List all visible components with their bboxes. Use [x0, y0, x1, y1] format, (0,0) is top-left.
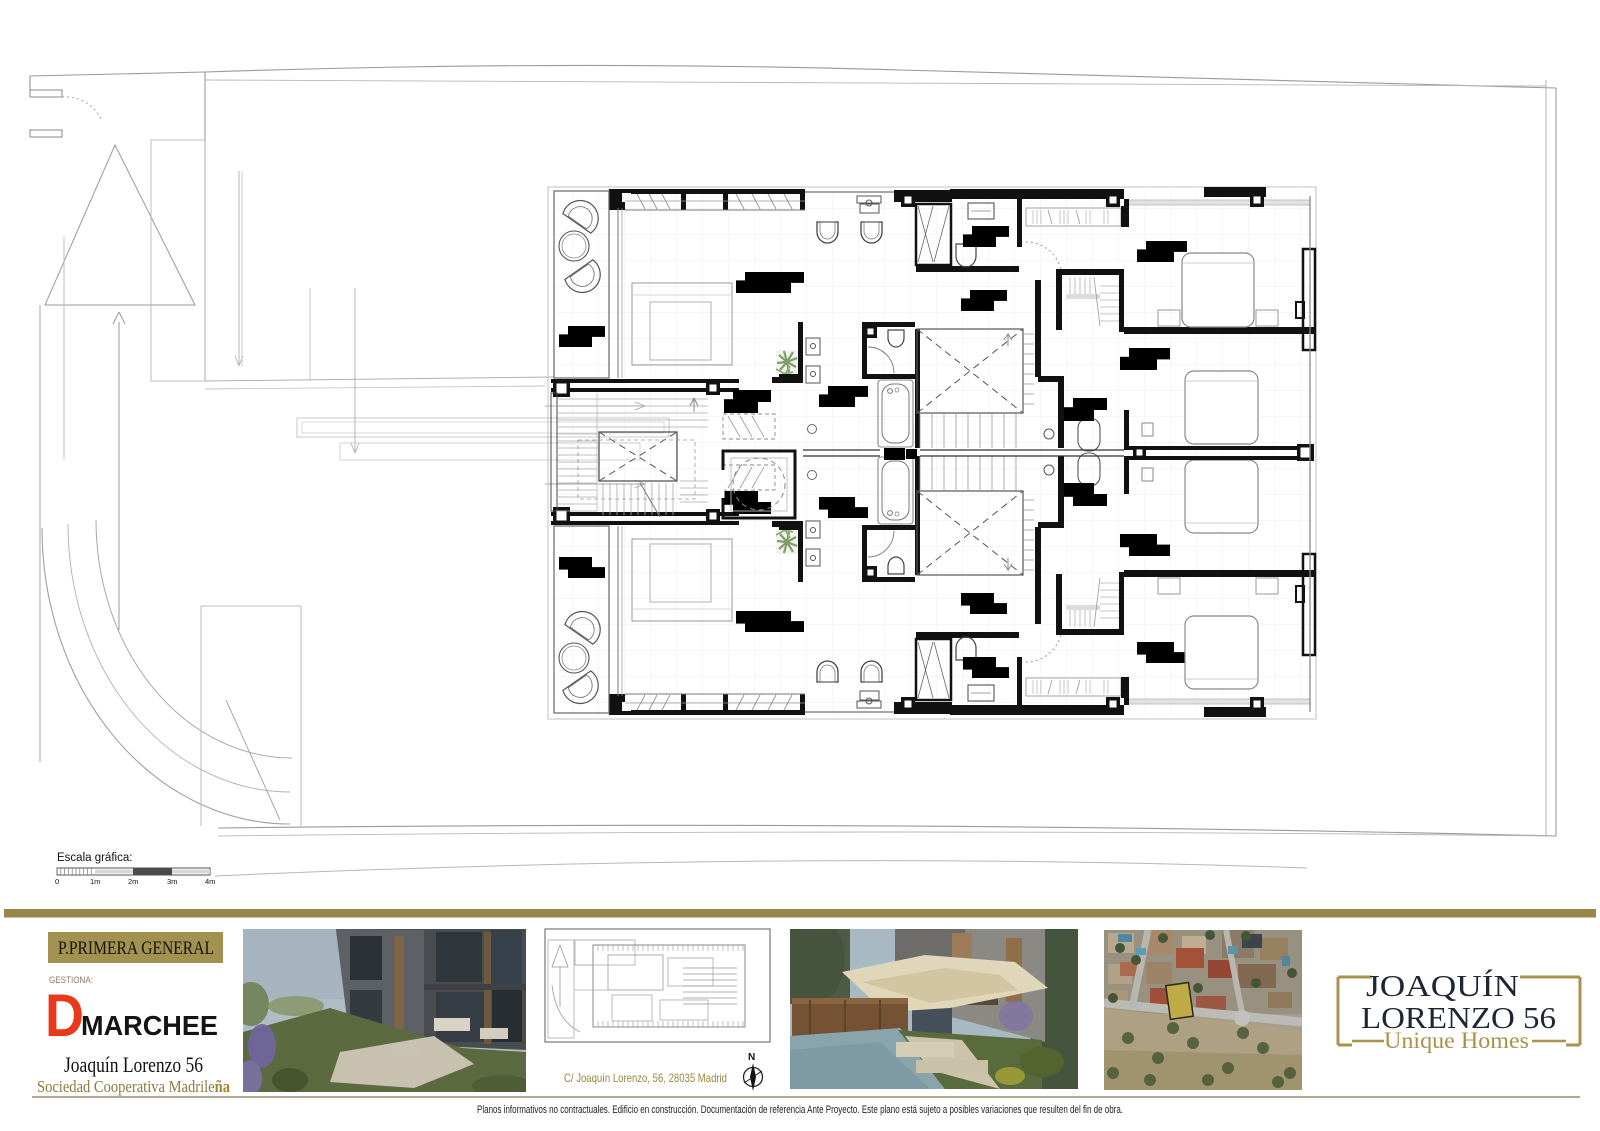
svg-text:1m: 1m [90, 877, 100, 886]
svg-text:Joaquín Lorenzo 56: Joaquín Lorenzo 56 [64, 1052, 203, 1077]
svg-text:0: 0 [55, 877, 59, 886]
svg-text:Escala gráfica:: Escala gráfica: [57, 852, 132, 864]
svg-text:2m: 2m [128, 877, 138, 886]
svg-text:JOAQUÍN: JOAQUÍN [1366, 968, 1519, 1003]
svg-text:P.PRIMERA GENERAL: P.PRIMERA GENERAL [58, 938, 214, 959]
svg-text:Planos informativos no contrac: Planos informativos no contractuales. Ed… [477, 1104, 1123, 1116]
svg-text:Sociedad Cooperativa Madrileña: Sociedad Cooperativa Madrileña [37, 1077, 230, 1096]
svg-text:N: N [748, 1052, 755, 1063]
svg-text:4m: 4m [205, 877, 215, 886]
svg-text:3m: 3m [167, 877, 177, 886]
svg-text:Unique Homes: Unique Homes [1384, 1028, 1529, 1053]
svg-text:D: D [45, 982, 84, 1049]
svg-text:C/ Joaquín Lorenzo, 56, 28035: C/ Joaquín Lorenzo, 56, 28035 Madrid [564, 1071, 727, 1085]
svg-text:MARCHEE: MARCHEE [81, 1010, 218, 1041]
